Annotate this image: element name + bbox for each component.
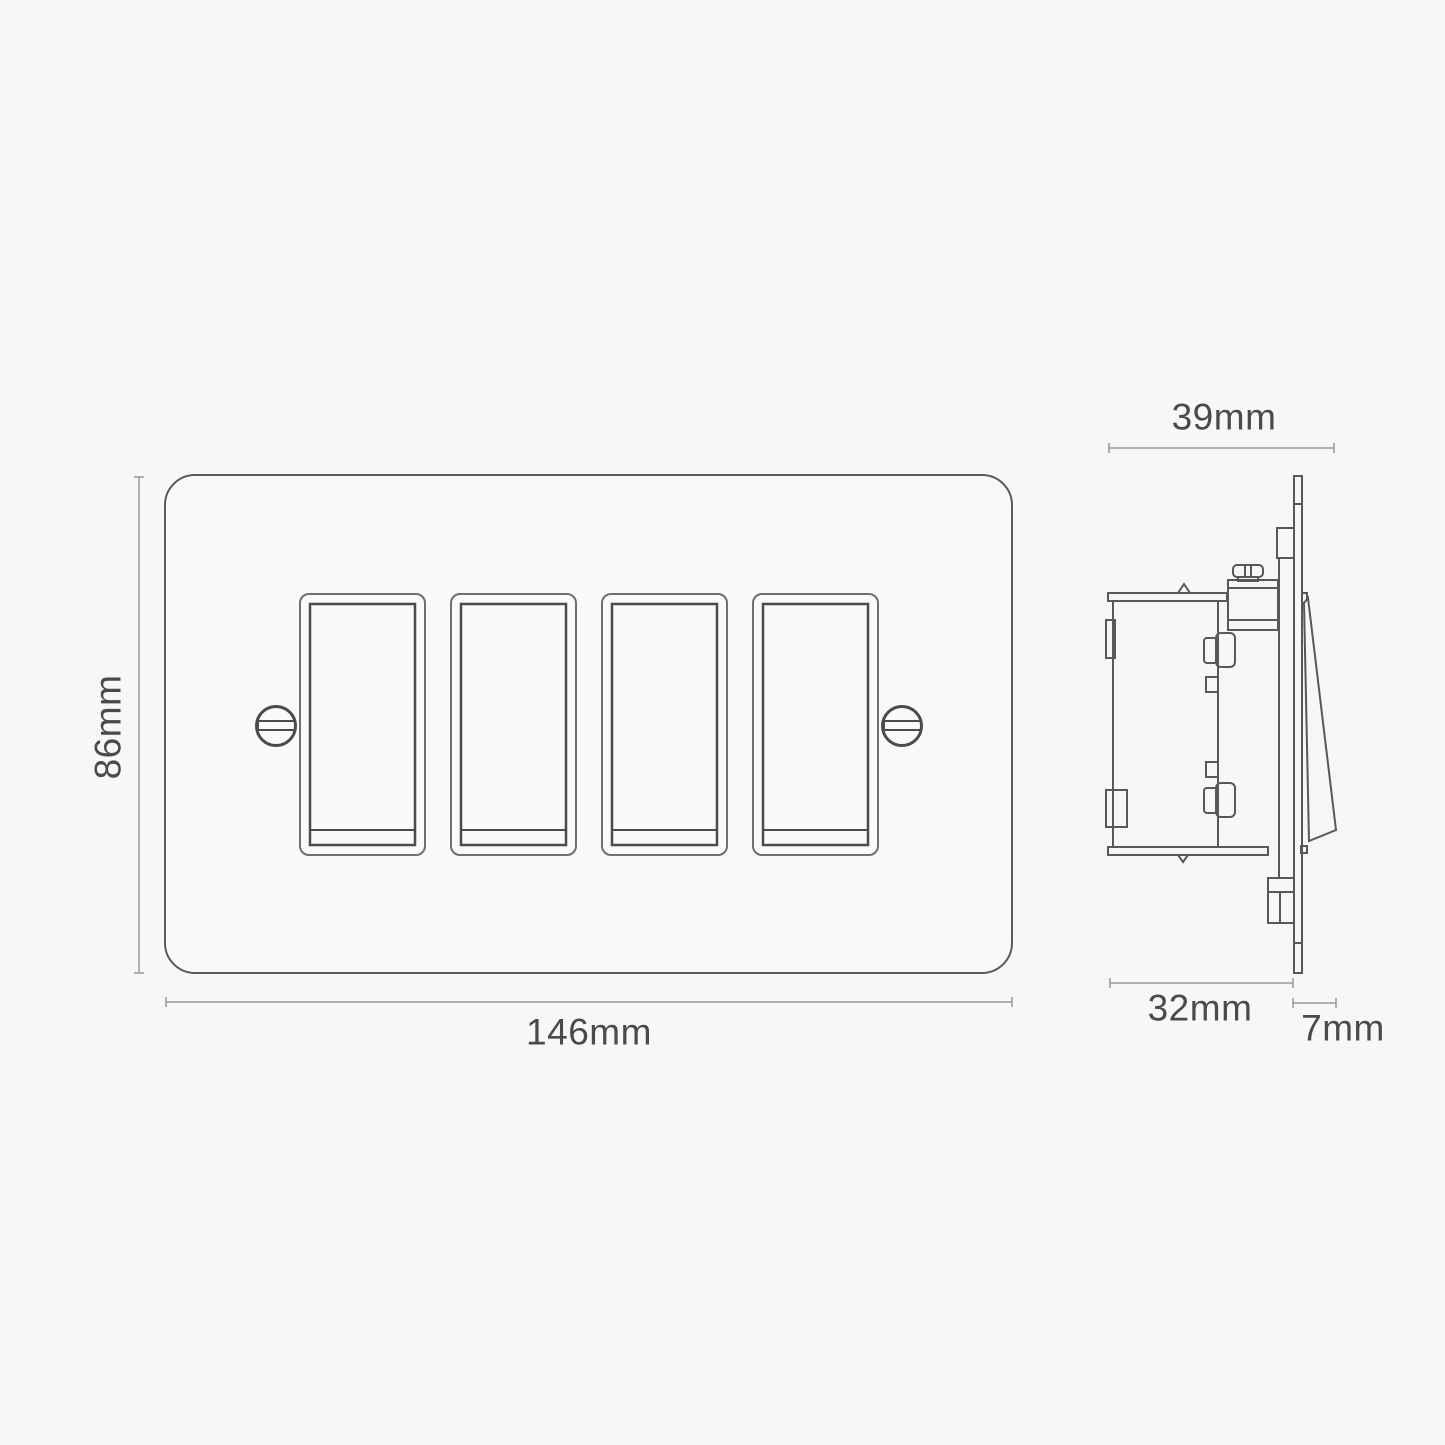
rocker-outer-frame bbox=[753, 594, 878, 855]
terminal-screw-icon bbox=[1233, 565, 1263, 577]
rocker-switch bbox=[451, 594, 576, 855]
rocker-switch bbox=[300, 594, 425, 855]
rocker-lower-notch bbox=[1301, 846, 1307, 853]
screw-left bbox=[257, 707, 296, 746]
wall-plate-side bbox=[1294, 476, 1302, 973]
fixing-hook-top bbox=[1206, 677, 1218, 692]
rocker-outer-frame bbox=[602, 594, 727, 855]
dim-label-height: 86mm bbox=[90, 675, 127, 780]
dimension-diagram: 86mm 146mm 39mm 32mm 7mm bbox=[0, 0, 1445, 1445]
rocker-switch bbox=[602, 594, 727, 855]
back-box-bottom-lip bbox=[1108, 847, 1268, 855]
dim-line-projection bbox=[1293, 998, 1336, 1008]
rocker-outer-frame bbox=[300, 594, 425, 855]
top-clip-icon bbox=[1178, 584, 1190, 593]
rocker-switch bbox=[753, 594, 878, 855]
yoke-top-arm bbox=[1277, 528, 1294, 558]
side-view bbox=[1106, 476, 1336, 973]
bottom-clip-icon bbox=[1178, 855, 1188, 862]
dim-line-overall-depth bbox=[1109, 443, 1334, 453]
screw-right bbox=[883, 707, 922, 746]
rocker-outer-frame bbox=[451, 594, 576, 855]
dim-label-projection: 7mm bbox=[1301, 1010, 1385, 1047]
dim-label-width: 146mm bbox=[526, 1014, 652, 1051]
screw-head-icon bbox=[257, 707, 296, 746]
line-art bbox=[0, 0, 1445, 1445]
back-box-top-lip bbox=[1108, 593, 1227, 601]
screw-head-icon bbox=[883, 707, 922, 746]
fixing-hook-bottom bbox=[1206, 762, 1218, 777]
back-box-foot bbox=[1106, 790, 1127, 827]
rocker-lever-side bbox=[1304, 598, 1336, 841]
dim-line-box-depth bbox=[1110, 978, 1293, 988]
dim-label-overall-depth: 39mm bbox=[1172, 399, 1277, 436]
back-box bbox=[1113, 601, 1218, 847]
yoke-bottom-step bbox=[1268, 878, 1294, 892]
dim-line-height bbox=[134, 477, 144, 973]
dim-label-box-depth: 32mm bbox=[1148, 990, 1253, 1027]
dim-line-width bbox=[166, 997, 1012, 1007]
front-view bbox=[165, 475, 1012, 973]
